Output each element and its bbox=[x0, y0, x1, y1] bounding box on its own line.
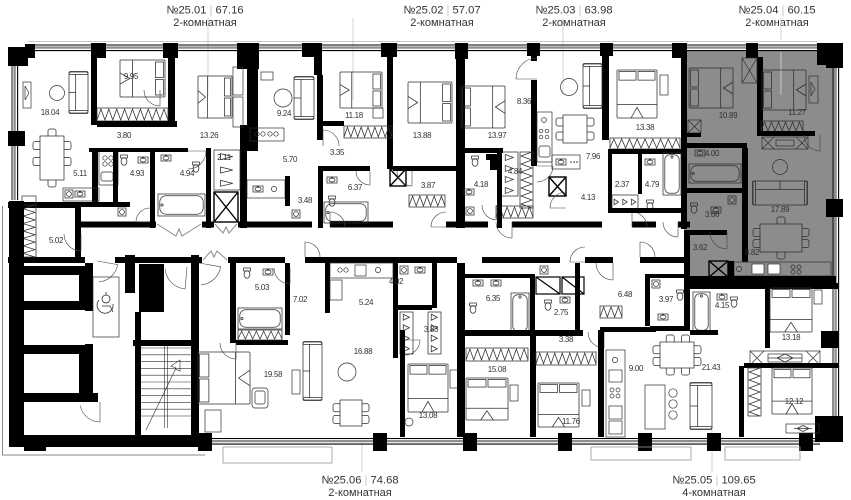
svg-text:4.18: 4.18 bbox=[474, 180, 489, 189]
svg-text:9.24: 9.24 bbox=[277, 109, 292, 118]
svg-text:4.02: 4.02 bbox=[389, 277, 404, 286]
svg-text:4.93: 4.93 bbox=[130, 169, 145, 178]
svg-text:13.18: 13.18 bbox=[782, 333, 801, 342]
svg-text:4.15: 4.15 bbox=[715, 301, 730, 310]
svg-text:17.89: 17.89 bbox=[771, 205, 790, 214]
svg-text:5.11: 5.11 bbox=[73, 169, 88, 178]
svg-text:2-комнатная: 2-комнатная bbox=[410, 17, 474, 29]
svg-text:21.43: 21.43 bbox=[702, 363, 721, 372]
svg-text:2-комнатная: 2-комнатная bbox=[745, 17, 809, 29]
svg-text:13.38: 13.38 bbox=[636, 123, 655, 132]
svg-text:3.62: 3.62 bbox=[693, 243, 708, 252]
svg-text:3.80: 3.80 bbox=[117, 131, 132, 140]
svg-text:18.04: 18.04 bbox=[41, 108, 60, 117]
svg-text:19.58: 19.58 bbox=[264, 370, 283, 379]
svg-text:8.36: 8.36 bbox=[517, 97, 532, 106]
svg-text:13.97: 13.97 bbox=[488, 131, 507, 140]
svg-text:№25.06 | 74.68: №25.06 | 74.68 bbox=[321, 475, 398, 487]
svg-text:№25.04 | 60.15: №25.04 | 60.15 bbox=[738, 5, 815, 17]
svg-text:15.08: 15.08 bbox=[488, 365, 507, 374]
svg-text:4.79: 4.79 bbox=[645, 180, 660, 189]
svg-text:4.84: 4.84 bbox=[508, 167, 523, 176]
svg-text:4.00: 4.00 bbox=[705, 149, 720, 158]
svg-text:№25.05 | 109.65: №25.05 | 109.65 bbox=[672, 475, 755, 487]
svg-text:16.88: 16.88 bbox=[354, 347, 373, 356]
svg-text:3.35: 3.35 bbox=[330, 148, 345, 157]
svg-text:4.94: 4.94 bbox=[180, 169, 195, 178]
svg-text:3.87: 3.87 bbox=[421, 181, 436, 190]
svg-text:7.96: 7.96 bbox=[586, 152, 601, 161]
svg-text:5.02: 5.02 bbox=[49, 236, 64, 245]
svg-text:10.89: 10.89 bbox=[719, 111, 738, 120]
svg-text:2.75: 2.75 bbox=[554, 308, 569, 317]
svg-text:№25.01 | 67.16: №25.01 | 67.16 bbox=[166, 5, 243, 17]
svg-text:5.70: 5.70 bbox=[283, 155, 298, 164]
svg-text:№25.02 | 57.07: №25.02 | 57.07 bbox=[403, 5, 480, 17]
svg-text:7.02: 7.02 bbox=[293, 295, 308, 304]
svg-text:5.24: 5.24 bbox=[359, 298, 374, 307]
svg-text:12.12: 12.12 bbox=[785, 397, 804, 406]
svg-text:6.48: 6.48 bbox=[618, 290, 633, 299]
svg-text:6.35: 6.35 bbox=[486, 294, 501, 303]
svg-text:11.18: 11.18 bbox=[345, 111, 364, 120]
svg-text:8.82: 8.82 bbox=[745, 248, 760, 257]
svg-text:6.37: 6.37 bbox=[348, 183, 363, 192]
svg-text:2-комнатная: 2-комнатная bbox=[328, 487, 392, 499]
svg-text:11.76: 11.76 bbox=[562, 417, 581, 426]
svg-text:5.03: 5.03 bbox=[255, 283, 270, 292]
svg-text:9.00: 9.00 bbox=[629, 364, 644, 373]
svg-text:13.26: 13.26 bbox=[200, 131, 219, 140]
svg-text:2-комнатная: 2-комнатная bbox=[173, 17, 237, 29]
svg-text:11.27: 11.27 bbox=[788, 108, 807, 117]
svg-text:3.38: 3.38 bbox=[559, 335, 574, 344]
svg-text:4.13: 4.13 bbox=[581, 193, 596, 202]
svg-text:3.97: 3.97 bbox=[659, 295, 674, 304]
svg-text:2-комнатная: 2-комнатная bbox=[542, 17, 606, 29]
svg-text:2.37: 2.37 bbox=[615, 180, 630, 189]
svg-text:4-комнатная: 4-комнатная bbox=[682, 487, 746, 499]
svg-text:3.48: 3.48 bbox=[298, 196, 313, 205]
svg-text:№25.03 | 63.98: №25.03 | 63.98 bbox=[535, 5, 612, 17]
